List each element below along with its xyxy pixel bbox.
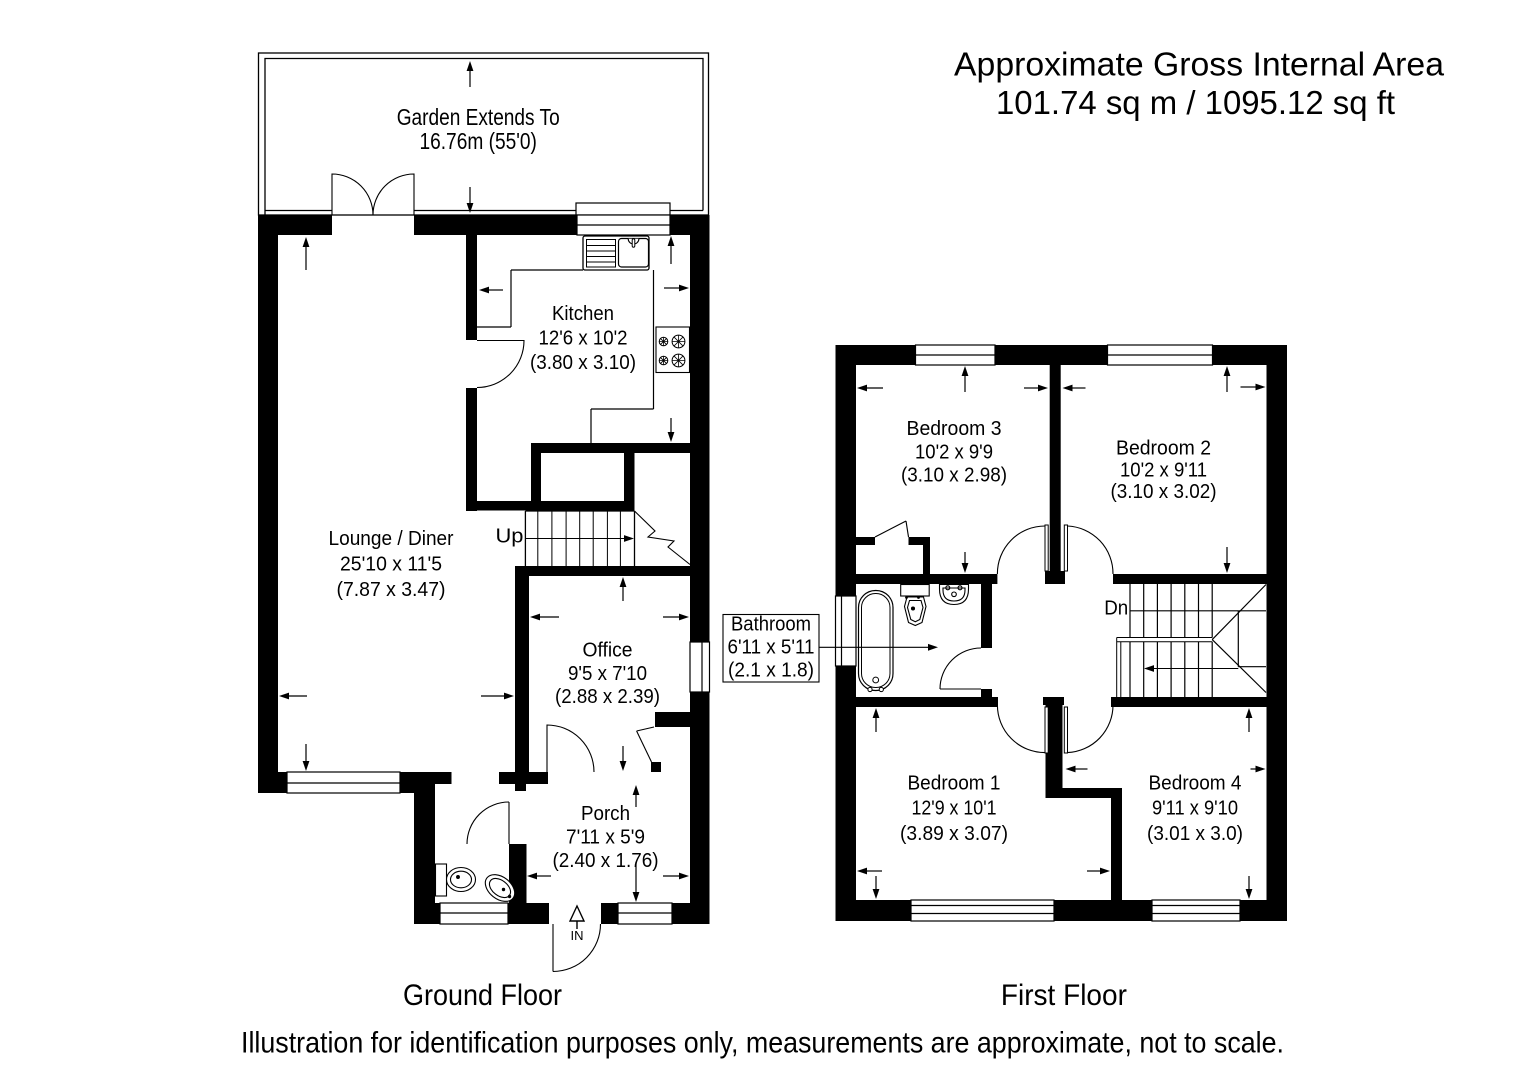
svg-text:7'11 x 5'9: 7'11 x 5'9 xyxy=(566,827,645,849)
svg-text:12'9 x 10'1: 12'9 x 10'1 xyxy=(912,798,997,820)
svg-text:9'11 x 9'10: 9'11 x 9'10 xyxy=(1152,798,1238,820)
svg-text:(2.1 x 1.8): (2.1 x 1.8) xyxy=(728,660,814,682)
svg-text:Bedroom 3: Bedroom 3 xyxy=(907,418,1002,440)
svg-text:(7.87 x 3.47): (7.87 x 3.47) xyxy=(337,579,446,601)
svg-text:Porch: Porch xyxy=(581,803,630,825)
svg-text:(3.80 x 3.10): (3.80 x 3.10) xyxy=(530,352,636,374)
svg-text:(2.40 x 1.76): (2.40 x 1.76) xyxy=(553,850,659,872)
svg-text:IN: IN xyxy=(571,929,584,943)
svg-text:Dn: Dn xyxy=(1104,598,1128,620)
svg-text:Garden Extends To: Garden Extends To xyxy=(397,104,560,130)
svg-text:Illustration for identificatio: Illustration for identification purposes… xyxy=(241,1027,1284,1060)
svg-text:12'6 x 10'2: 12'6 x 10'2 xyxy=(539,327,628,349)
svg-text:(3.10 x 2.98): (3.10 x 2.98) xyxy=(901,465,1007,487)
svg-text:Approximate Gross Internal Are: Approximate Gross Internal Area xyxy=(954,46,1445,83)
svg-text:6'11 x 5'11: 6'11 x 5'11 xyxy=(728,637,815,659)
svg-text:Bathroom: Bathroom xyxy=(731,614,811,636)
svg-text:16.76m (55'0): 16.76m (55'0) xyxy=(419,128,537,154)
svg-text:101.74 sq m / 1095.12 sq ft: 101.74 sq m / 1095.12 sq ft xyxy=(996,84,1395,121)
svg-text:Bedroom 1: Bedroom 1 xyxy=(908,773,1001,795)
svg-text:(3.89 x 3.07): (3.89 x 3.07) xyxy=(900,823,1008,845)
svg-text:10'2 x 9'11: 10'2 x 9'11 xyxy=(1120,459,1207,481)
svg-text:Office: Office xyxy=(583,640,633,662)
svg-text:Bedroom 4: Bedroom 4 xyxy=(1149,773,1242,795)
svg-text:First Floor: First Floor xyxy=(1001,979,1127,1012)
svg-text:Lounge / Diner: Lounge / Diner xyxy=(329,528,454,550)
svg-text:(2.88 x 2.39): (2.88 x 2.39) xyxy=(555,686,660,708)
svg-text:Bedroom 2: Bedroom 2 xyxy=(1116,438,1211,460)
svg-text:25'10 x 11'5: 25'10 x 11'5 xyxy=(340,554,442,576)
svg-text:Up: Up xyxy=(496,525,524,548)
svg-text:Ground Floor: Ground Floor xyxy=(403,979,562,1012)
svg-text:10'2 x 9'9: 10'2 x 9'9 xyxy=(915,441,993,463)
svg-text:9'5 x 7'10: 9'5 x 7'10 xyxy=(568,663,647,685)
svg-text:(3.10 x 3.02): (3.10 x 3.02) xyxy=(1111,481,1217,503)
svg-text:Kitchen: Kitchen xyxy=(552,303,614,325)
svg-text:(3.01 x 3.0): (3.01 x 3.0) xyxy=(1147,823,1243,845)
